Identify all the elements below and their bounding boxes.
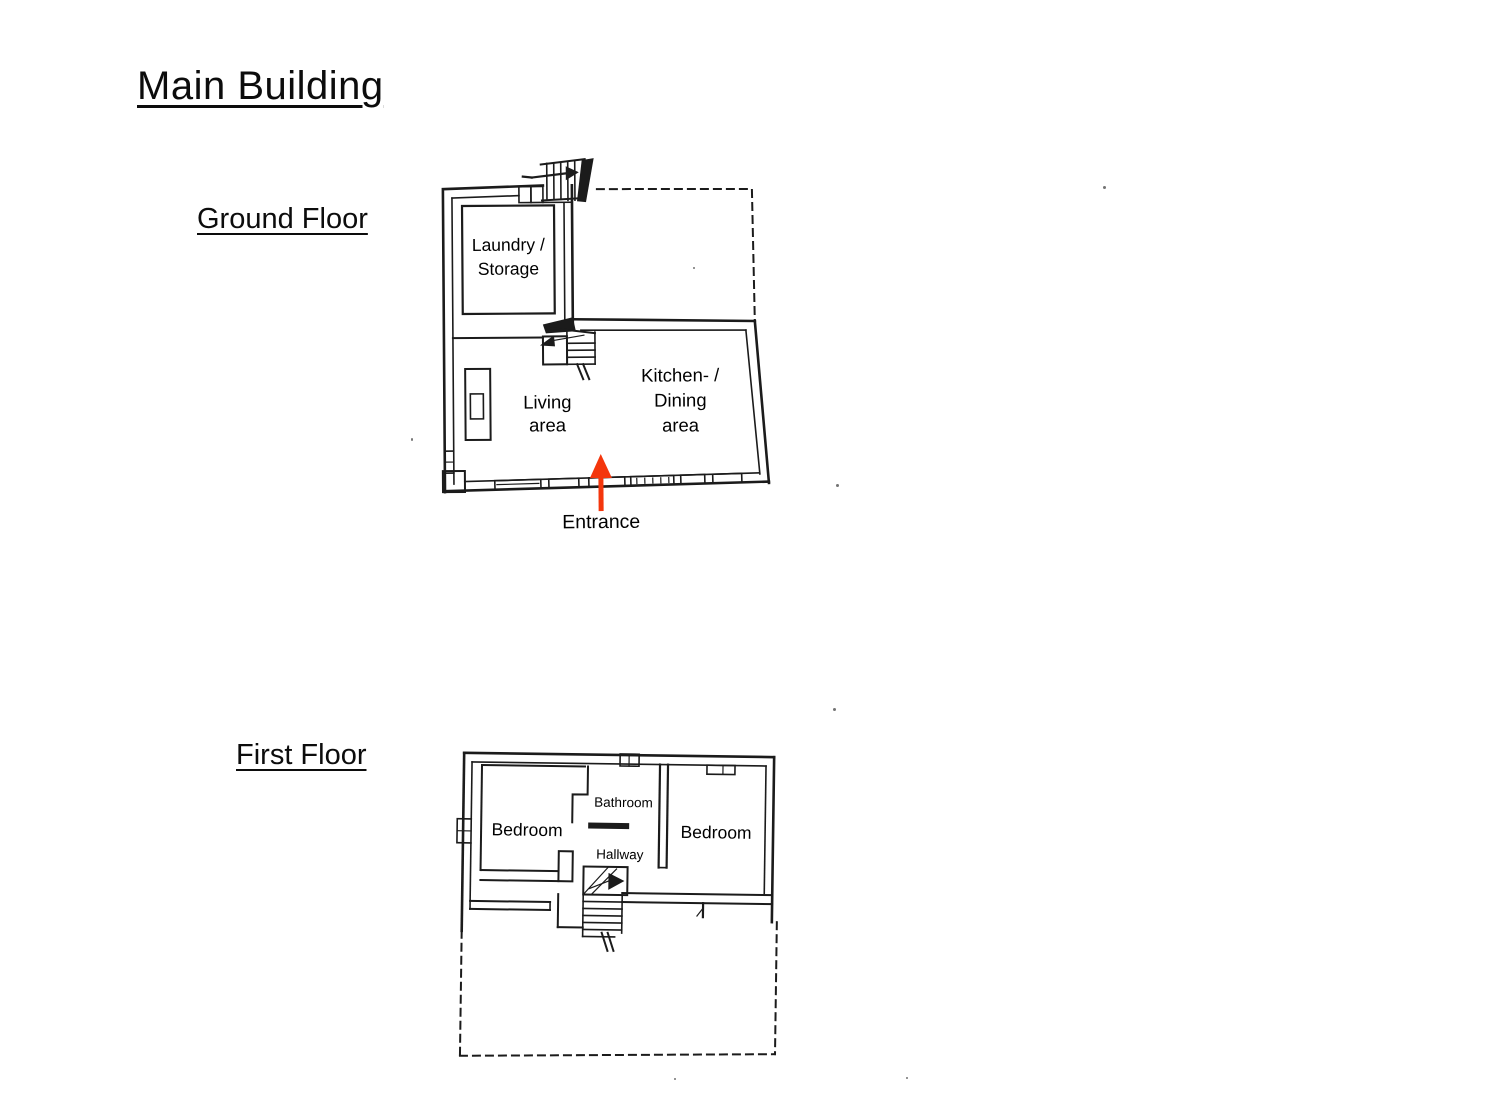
room-label-bedroom-left: Bedroom xyxy=(491,819,562,840)
scan-speck xyxy=(411,438,413,441)
room-label-hallway: Hallway xyxy=(596,847,644,863)
dashed-terrace-outline xyxy=(460,918,777,1060)
room-label-kitchen-line2: Dining xyxy=(654,389,707,410)
chimney xyxy=(465,369,490,440)
scan-speck xyxy=(1103,186,1106,189)
room-label-bedroom-right: Bedroom xyxy=(680,822,751,843)
entrance-label: Entrance xyxy=(562,511,640,534)
room-label-living-line2: area xyxy=(529,414,567,435)
room-label-kitchen-line3: area xyxy=(662,414,700,435)
first-floor-plan: Bedroom Bathroom Bedroom Hallway xyxy=(448,743,793,1078)
first-floor-heading: First Floor xyxy=(236,739,367,772)
scan-speck xyxy=(906,1077,908,1079)
interior-stairs-icon xyxy=(540,327,595,379)
scan-speck xyxy=(693,267,695,269)
ground-floor-heading: Ground Floor xyxy=(197,203,368,236)
scan-speck xyxy=(833,708,836,711)
outer-walls xyxy=(456,752,774,935)
entrance-arrow-icon xyxy=(590,454,612,511)
room-label-living-line1: Living xyxy=(523,391,571,412)
room-label-kitchen-line1: Kitchen- / xyxy=(641,364,720,386)
page-title: Main Building xyxy=(137,64,384,109)
stairwell-icon xyxy=(557,866,627,951)
dashed-patio-outline xyxy=(597,188,755,322)
ground-floor-plan: Laundry / Storage Living area Kitchen- /… xyxy=(435,149,783,546)
room-label-laundry-line1: Laundry / xyxy=(472,234,545,255)
scan-speck xyxy=(674,1078,676,1080)
room-label-bathroom: Bathroom xyxy=(594,795,653,811)
scan-speck xyxy=(836,484,839,487)
exterior-stairs-icon xyxy=(523,158,594,202)
room-label-laundry-line2: Storage xyxy=(478,258,539,278)
floor-plan-document: Main Building Ground Floor First Floor xyxy=(0,0,1486,1104)
